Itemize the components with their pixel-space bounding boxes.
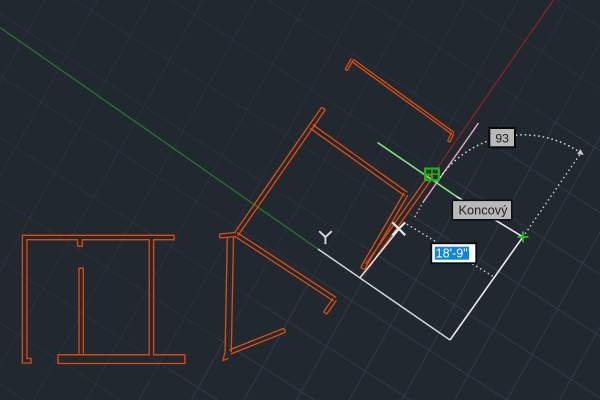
svg-text:Koncový: Koncový: [459, 203, 509, 218]
svg-text:18'-9": 18'-9": [436, 246, 468, 260]
svg-text:93: 93: [495, 131, 509, 145]
